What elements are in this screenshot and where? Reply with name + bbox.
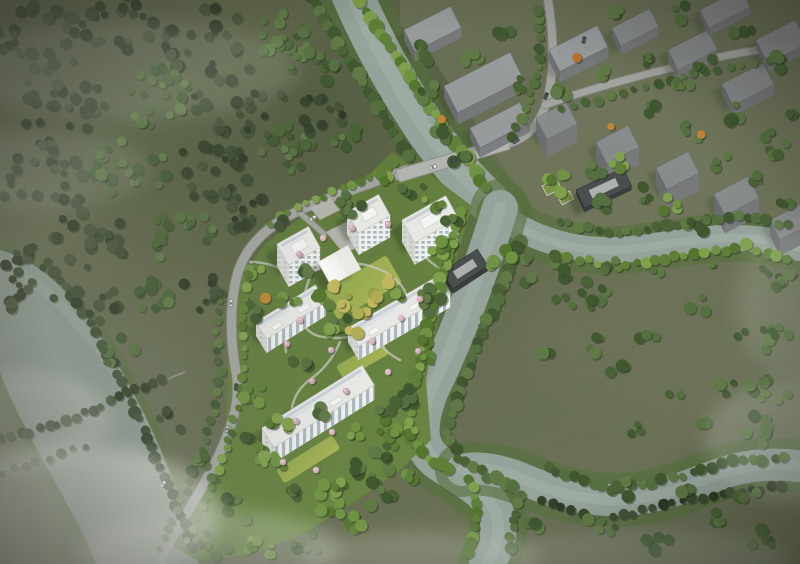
aerial-render-canvas — [0, 0, 800, 564]
vignette-overlay — [0, 0, 800, 564]
aerial-rendering-stage — [0, 0, 800, 564]
